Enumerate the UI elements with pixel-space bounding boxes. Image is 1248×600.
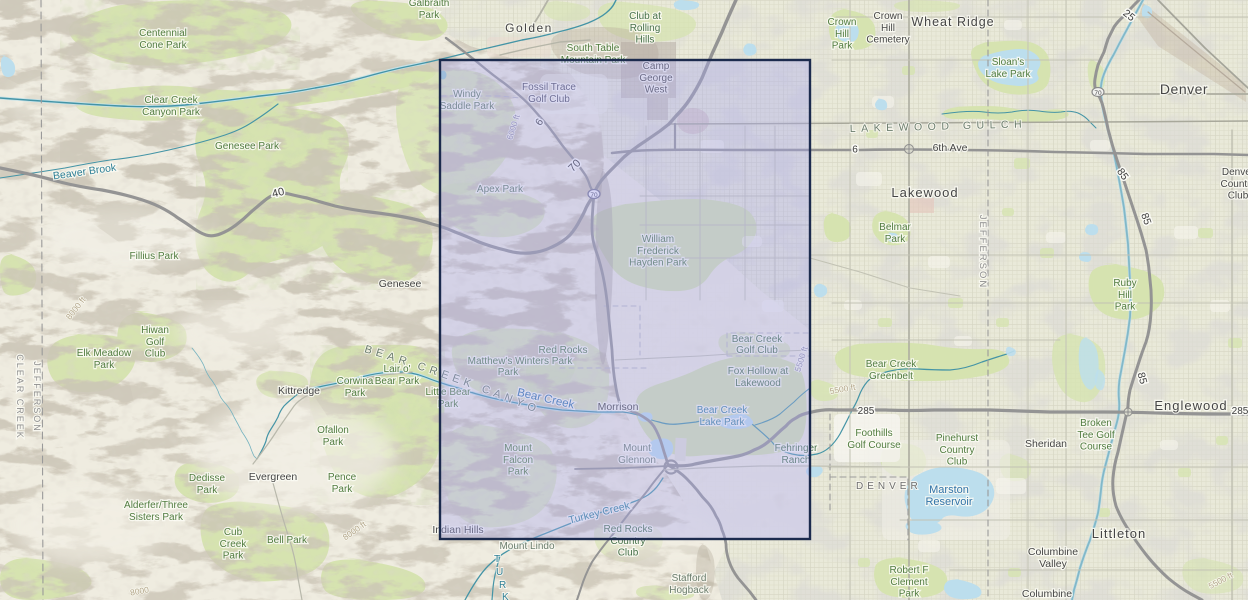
svg-text:CLEAR CREEK: CLEAR CREEK <box>15 354 25 440</box>
svg-text:JEFFERSON: JEFFERSON <box>32 361 42 433</box>
svg-text:U: U <box>496 567 503 578</box>
svg-text:JEFFERSON: JEFFERSON <box>977 215 988 289</box>
svg-text:Wheat Ridge: Wheat Ridge <box>911 15 994 29</box>
svg-text:Littleton: Littleton <box>1092 526 1147 541</box>
svg-text:DENVER: DENVER <box>856 481 922 492</box>
svg-text:R: R <box>499 580 506 591</box>
svg-text:Golden: Golden <box>505 21 553 35</box>
svg-text:Genesee Park: Genesee Park <box>215 141 280 152</box>
svg-text:Mount Lindo: Mount Lindo <box>499 541 554 552</box>
svg-text:MarstonReservoir: MarstonReservoir <box>925 484 972 508</box>
svg-text:Kittredge: Kittredge <box>278 385 320 397</box>
svg-text:6: 6 <box>852 145 858 156</box>
svg-text:Clear CreekCanyon Park: Clear CreekCanyon Park <box>142 95 201 118</box>
svg-text:285: 285 <box>858 406 875 417</box>
svg-text:6th Ave: 6th Ave <box>933 142 968 154</box>
svg-text:Bear CreekGreenbelt: Bear CreekGreenbelt <box>866 359 918 382</box>
svg-text:285: 285 <box>1232 406 1248 417</box>
svg-text:Denver: Denver <box>1160 81 1208 97</box>
svg-text:T: T <box>494 554 500 565</box>
svg-text:K: K <box>502 592 509 600</box>
svg-text:BrokenTee GolfCourse: BrokenTee GolfCourse <box>1077 418 1114 453</box>
svg-text:Evergreen: Evergreen <box>249 471 298 483</box>
svg-text:Columbine: Columbine <box>1022 588 1072 600</box>
svg-text:StaffordHogback: StaffordHogback <box>669 573 709 596</box>
svg-text:Bell Park: Bell Park <box>267 535 308 546</box>
svg-text:Lakewood: Lakewood <box>891 185 958 200</box>
svg-text:Sheridan: Sheridan <box>1025 438 1067 450</box>
svg-text:70: 70 <box>1094 90 1102 97</box>
svg-text:Genesee: Genesee <box>379 278 422 290</box>
svg-text:Fillius Park: Fillius Park <box>130 251 180 262</box>
svg-text:Alderfer/ThreeSisters Park: Alderfer/ThreeSisters Park <box>124 500 188 523</box>
svg-text:CentennialCone Park: CentennialCone Park <box>139 28 188 51</box>
svg-text:Englewood: Englewood <box>1154 398 1227 413</box>
